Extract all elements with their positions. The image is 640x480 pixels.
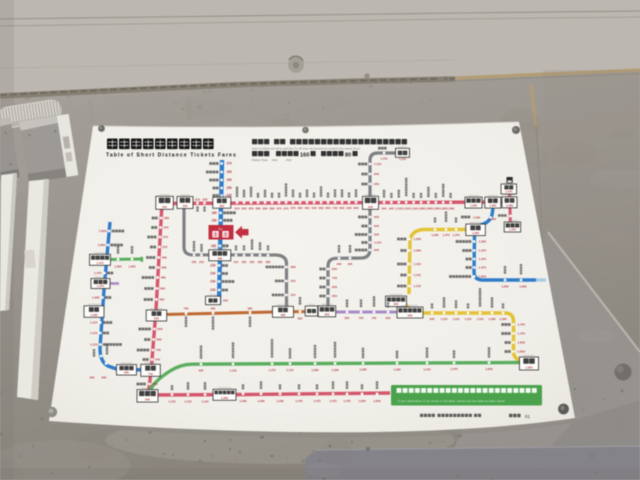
svg-text:1,290: 1,290 <box>447 206 455 210</box>
svg-text:1,470: 1,470 <box>505 190 512 194</box>
svg-text:460: 460 <box>297 206 302 210</box>
svg-text:740: 740 <box>184 307 189 311</box>
svg-text:250: 250 <box>227 186 233 190</box>
svg-text:940: 940 <box>430 317 435 321</box>
svg-text:560: 560 <box>160 287 165 291</box>
svg-text:1,290: 1,290 <box>239 399 247 403</box>
svg-text:940: 940 <box>348 262 353 266</box>
svg-text:1,110: 1,110 <box>229 368 236 372</box>
svg-text:1,290: 1,290 <box>489 317 496 321</box>
svg-text:1,290: 1,290 <box>473 215 481 219</box>
svg-text:1,110: 1,110 <box>374 162 382 166</box>
svg-text:940: 940 <box>353 206 358 210</box>
svg-text:230: 230 <box>241 206 246 210</box>
svg-text:560: 560 <box>159 298 164 302</box>
svg-text:940: 940 <box>346 206 351 210</box>
svg-text:370: 370 <box>227 162 233 166</box>
svg-text:650: 650 <box>158 327 163 331</box>
svg-text:940: 940 <box>382 206 387 210</box>
svg-text:840: 840 <box>339 206 344 210</box>
svg-text:650: 650 <box>345 316 350 320</box>
svg-text:940: 940 <box>394 302 399 306</box>
svg-text:1,290: 1,290 <box>311 368 319 372</box>
svg-text:1,290: 1,290 <box>257 399 265 403</box>
svg-text:1,290: 1,290 <box>479 240 487 244</box>
svg-text:740: 740 <box>359 316 364 320</box>
svg-text:1,470: 1,470 <box>479 266 487 270</box>
svg-text:940: 940 <box>368 205 373 209</box>
svg-text:Platform Ticket Adult: Platform Ticket Adult Child <box>252 159 292 162</box>
svg-text:1,290: 1,290 <box>432 233 439 237</box>
svg-text:160: 160 <box>211 244 217 248</box>
svg-text:560: 560 <box>298 317 303 321</box>
svg-text:250: 250 <box>250 260 255 264</box>
svg-text:940: 940 <box>374 182 379 186</box>
svg-text:1,650: 1,650 <box>518 341 526 345</box>
svg-text:1,110: 1,110 <box>168 400 175 404</box>
svg-text:370: 370 <box>162 245 167 249</box>
svg-text:1,470: 1,470 <box>97 284 104 288</box>
svg-text:160: 160 <box>211 219 217 223</box>
svg-text:290: 290 <box>227 178 233 182</box>
svg-text:240: 240 <box>162 205 167 209</box>
svg-text:210: 210 <box>234 206 239 210</box>
svg-text:1,650: 1,650 <box>129 265 136 269</box>
svg-text:1,110: 1,110 <box>381 157 388 161</box>
svg-text:230: 230 <box>183 204 188 208</box>
svg-text:290: 290 <box>227 170 233 174</box>
svg-text:940: 940 <box>199 369 204 373</box>
svg-text:1,470: 1,470 <box>313 399 321 403</box>
svg-text:Doi: Doi <box>219 227 223 231</box>
svg-text:460: 460 <box>162 256 167 260</box>
svg-text:940: 940 <box>374 172 379 176</box>
svg-text:1,470: 1,470 <box>329 399 337 403</box>
svg-text:1,110: 1,110 <box>441 317 448 321</box>
svg-text:1,470: 1,470 <box>518 323 526 327</box>
svg-text:1,110: 1,110 <box>268 368 275 372</box>
svg-text:370: 370 <box>163 235 168 239</box>
svg-text:1,290: 1,290 <box>359 368 367 372</box>
svg-text:650: 650 <box>332 294 337 298</box>
svg-text:260: 260 <box>258 260 263 264</box>
svg-text:1,470: 1,470 <box>450 367 458 371</box>
svg-text:If your destination is not sho: If your destination is not shown in the … <box>398 399 506 403</box>
svg-text:1,470: 1,470 <box>343 399 351 403</box>
svg-text:1,470: 1,470 <box>97 261 104 265</box>
svg-text:1,290: 1,290 <box>221 396 228 400</box>
svg-text:1,110: 1,110 <box>90 343 98 347</box>
svg-text:1,290: 1,290 <box>92 296 100 300</box>
svg-text:230: 230 <box>210 288 216 292</box>
svg-text:1,290: 1,290 <box>470 204 477 208</box>
svg-text:1,290: 1,290 <box>489 204 496 208</box>
svg-text:940: 940 <box>408 314 413 318</box>
svg-text:1,650: 1,650 <box>526 366 533 370</box>
svg-text:740: 740 <box>155 358 160 362</box>
svg-text:1,290: 1,290 <box>276 399 284 403</box>
svg-text:740: 740 <box>148 372 153 376</box>
svg-text:460: 460 <box>304 206 309 210</box>
svg-text:1,110: 1,110 <box>403 206 410 210</box>
svg-text:740: 740 <box>332 206 337 210</box>
svg-text:1,470: 1,470 <box>518 332 526 336</box>
svg-text:1,290: 1,290 <box>506 203 513 207</box>
svg-text:1,650: 1,650 <box>99 229 107 233</box>
svg-text:1,290: 1,290 <box>414 249 422 253</box>
svg-text:740: 740 <box>156 348 161 352</box>
svg-text:1,470: 1,470 <box>479 249 487 253</box>
svg-text:280: 280 <box>255 206 260 210</box>
svg-text:1,290: 1,290 <box>91 313 98 317</box>
svg-text:230: 230 <box>242 260 247 264</box>
svg-text:230: 230 <box>192 260 197 264</box>
svg-text:560: 560 <box>318 206 323 210</box>
svg-text:1,290: 1,290 <box>472 231 479 235</box>
svg-text:1,110: 1,110 <box>477 317 484 321</box>
svg-text:1,650: 1,650 <box>98 243 106 247</box>
svg-text:1,290: 1,290 <box>393 368 401 372</box>
svg-text:230: 230 <box>223 299 228 303</box>
svg-text:650: 650 <box>325 312 330 316</box>
svg-text:280: 280 <box>262 206 267 210</box>
svg-text:1,650: 1,650 <box>485 367 493 371</box>
svg-text:160: 160 <box>211 211 217 215</box>
svg-text:940: 940 <box>386 316 391 320</box>
svg-text:1,110: 1,110 <box>414 273 422 277</box>
svg-text:230: 230 <box>210 264 216 268</box>
svg-text:940: 940 <box>90 376 95 380</box>
svg-text:1,110: 1,110 <box>184 400 191 404</box>
svg-text:1,470: 1,470 <box>423 367 431 371</box>
svg-text:1,650: 1,650 <box>518 350 526 354</box>
svg-text:1,650: 1,650 <box>358 399 366 403</box>
svg-text:280: 280 <box>266 260 271 264</box>
svg-text:250: 250 <box>219 204 224 208</box>
svg-text:560: 560 <box>211 307 216 311</box>
svg-text:01: 01 <box>525 414 530 419</box>
svg-text:370: 370 <box>164 226 169 230</box>
svg-text:460: 460 <box>281 313 286 317</box>
svg-text:460: 460 <box>161 276 166 280</box>
svg-text:1,290: 1,290 <box>331 368 339 372</box>
svg-text:1,110: 1,110 <box>286 368 293 372</box>
svg-text:1,110: 1,110 <box>414 284 422 288</box>
svg-text:940: 940 <box>374 233 379 237</box>
svg-text:370: 370 <box>290 206 295 210</box>
svg-text:1,110: 1,110 <box>374 241 382 245</box>
svg-text:460: 460 <box>161 266 166 270</box>
svg-text:230: 230 <box>210 280 216 284</box>
svg-text:650: 650 <box>157 338 162 342</box>
svg-text:Table of Short Distance Ticket: Table of Short Distance Tickets Fares <box>106 152 237 158</box>
svg-text:1,110: 1,110 <box>90 321 98 325</box>
svg-text:160: 160 <box>300 152 309 158</box>
svg-text:1,290: 1,290 <box>414 237 422 241</box>
svg-text:210: 210 <box>195 197 200 201</box>
svg-text:1,110: 1,110 <box>399 157 406 161</box>
svg-text:1,650: 1,650 <box>479 275 487 279</box>
svg-text:370: 370 <box>276 206 281 210</box>
svg-text:560: 560 <box>248 307 253 311</box>
svg-text:Fares for children are half an: Fares for children are half an adult far… <box>252 147 361 150</box>
svg-text:940: 940 <box>374 248 379 252</box>
svg-text:740: 740 <box>372 316 377 320</box>
svg-text:280: 280 <box>291 265 296 269</box>
svg-text:1,110: 1,110 <box>90 331 98 335</box>
svg-text:540: 540 <box>311 206 316 210</box>
svg-text:1,650: 1,650 <box>115 265 122 269</box>
svg-text:1,650: 1,650 <box>519 285 527 289</box>
svg-text:280: 280 <box>269 206 274 210</box>
svg-text:1,470: 1,470 <box>295 399 303 403</box>
svg-text:1,290: 1,290 <box>500 317 507 321</box>
svg-text:230: 230 <box>202 197 207 201</box>
svg-text:250: 250 <box>248 206 253 210</box>
svg-text:1,470: 1,470 <box>453 233 460 237</box>
svg-text:1,470: 1,470 <box>509 228 516 232</box>
svg-text:940: 940 <box>374 224 379 228</box>
svg-text:840: 840 <box>332 267 337 271</box>
svg-text:210: 210 <box>234 260 239 264</box>
svg-text:1,110: 1,110 <box>414 262 422 266</box>
svg-text:1,650: 1,650 <box>501 285 509 289</box>
svg-text:1,470: 1,470 <box>94 271 102 275</box>
svg-text:1,470: 1,470 <box>443 233 450 237</box>
svg-text:650: 650 <box>325 206 330 210</box>
svg-text:840: 840 <box>102 376 107 380</box>
svg-text:650: 650 <box>332 285 337 289</box>
svg-text:230: 230 <box>210 272 216 276</box>
svg-text:210: 210 <box>199 260 204 264</box>
svg-text:940: 940 <box>145 398 150 402</box>
svg-text:370: 370 <box>291 279 296 283</box>
svg-text:1,110: 1,110 <box>201 400 208 404</box>
svg-text:80: 80 <box>345 152 351 158</box>
svg-text:180: 180 <box>217 256 222 260</box>
svg-text:740: 740 <box>332 276 337 280</box>
svg-text:940: 940 <box>374 215 379 219</box>
svg-text:1,110: 1,110 <box>453 317 460 321</box>
svg-text:1,110: 1,110 <box>395 206 402 210</box>
svg-text:370: 370 <box>283 206 288 210</box>
svg-text:940: 940 <box>389 206 394 210</box>
svg-text:280: 280 <box>164 216 169 220</box>
svg-text:840: 840 <box>124 371 129 375</box>
svg-text:370: 370 <box>291 293 296 297</box>
svg-text:1,650: 1,650 <box>373 399 381 403</box>
svg-text:650: 650 <box>154 317 159 321</box>
svg-text:940: 940 <box>337 262 342 266</box>
svg-text:1,470: 1,470 <box>479 257 487 261</box>
svg-text:1,110: 1,110 <box>465 317 472 321</box>
svg-text:840: 840 <box>153 382 158 386</box>
